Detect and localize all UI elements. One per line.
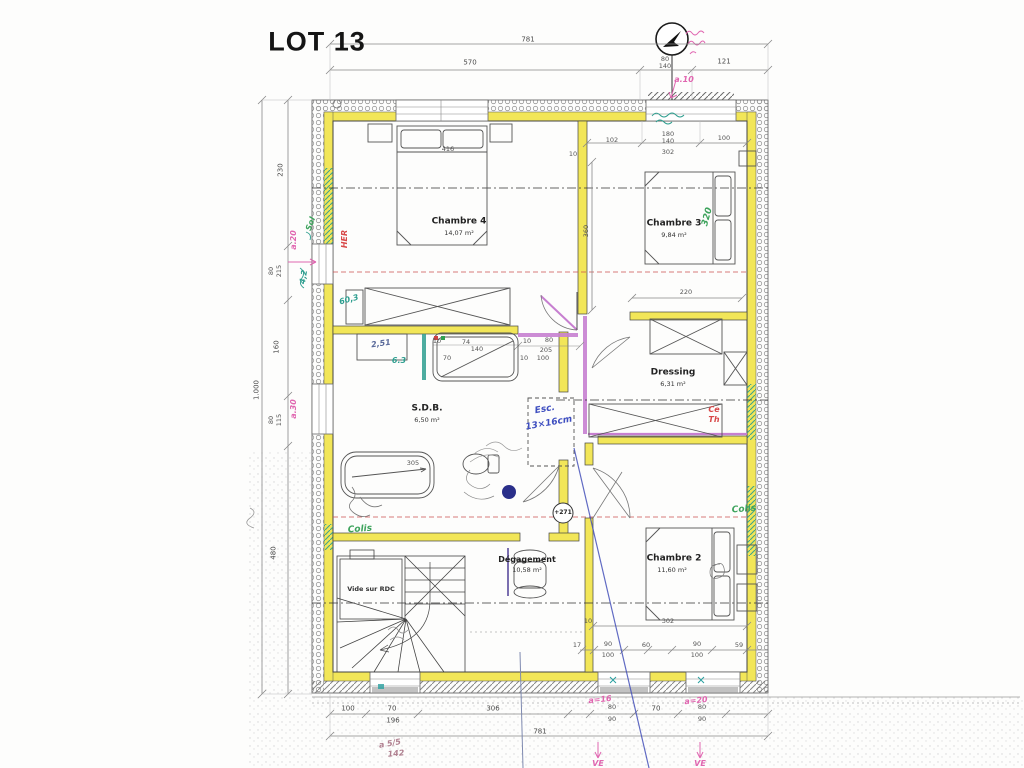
room-label-vide-sur-rdc: Vide sur RDC xyxy=(347,586,395,593)
dim-c2-59: 59 xyxy=(735,642,743,649)
staircase xyxy=(337,550,465,672)
room-area-chambre2: 11,60 m² xyxy=(657,567,687,574)
anno-pink-a20: a.20 xyxy=(290,230,298,250)
dim-win-302: 302 xyxy=(662,149,674,156)
dim-left-80b: 80 xyxy=(268,416,275,424)
dim-top-121: 121 xyxy=(717,59,730,66)
anno-pink-a30: a.30 xyxy=(290,399,298,419)
room-area-degagement: 10,58 m² xyxy=(512,567,542,574)
anno-c142: 142 xyxy=(387,749,404,758)
dim-van-74: 74 xyxy=(462,339,470,346)
dim-c2-90b: 90 xyxy=(693,641,701,648)
dim-bottom-overall: 781 xyxy=(533,729,546,736)
room-area-chambre4: 14,07 m² xyxy=(444,230,474,237)
floor-drain-dot xyxy=(502,485,516,499)
dim-win-140: 140 xyxy=(662,138,674,145)
dim-bottom-196: 196 xyxy=(386,718,399,725)
anno-red-her: HER xyxy=(341,230,349,248)
dim-c2-302: 302 xyxy=(662,618,674,625)
plan-title: LOT 13 xyxy=(268,29,366,56)
dim-c2-60: 60 xyxy=(642,642,650,649)
floor-plan-drawing xyxy=(0,0,1024,768)
dim-c2-10: 10 xyxy=(584,618,592,625)
dim-c2-17: 17 xyxy=(573,642,581,649)
exterior-walls xyxy=(312,100,768,693)
anno-pink-a10: a.10 xyxy=(674,76,694,84)
dim-bottom-70b: 70 xyxy=(652,706,661,713)
dim-c2-90a: 90 xyxy=(604,641,612,648)
room-area-sdb: 6,50 m² xyxy=(414,417,439,424)
room-area-chambre3: 9,84 m² xyxy=(661,232,686,239)
room-label-sdb: S.D.B. xyxy=(411,405,442,414)
dim-tub-305: 305 xyxy=(407,460,419,467)
dim-left-80a: 80 xyxy=(268,267,275,275)
dim-door-100: 100 xyxy=(537,355,549,362)
dim-bottom-70a: 70 xyxy=(388,706,397,713)
wardrobe-closets xyxy=(346,288,747,437)
dim-door-10a: 10 xyxy=(523,338,531,345)
room-label-degagement: Dégagement xyxy=(498,556,556,564)
dim-van-10: 10 xyxy=(433,338,441,345)
anno-pink-ve1: VE xyxy=(592,760,604,768)
dimension-lines xyxy=(258,40,772,740)
dim-wall-10: 10 xyxy=(569,151,577,158)
room-label-chambre2: Chambre 2 xyxy=(647,555,702,564)
anno-green-colis2: Colis xyxy=(348,525,373,536)
dim-door-80: 80 xyxy=(545,337,553,344)
dim-c2-100a: 100 xyxy=(602,652,614,659)
dim-door-205: 205 xyxy=(540,347,552,354)
terrain-stipple xyxy=(247,452,1024,768)
dim-left-160: 160 xyxy=(274,340,281,353)
room-area-dressing: 6,31 m² xyxy=(660,381,685,388)
dim-bed4-416: 416 xyxy=(442,146,454,153)
anno-teal-63: 6.3 xyxy=(392,357,406,365)
anno-pink-ve2: VE xyxy=(694,760,706,768)
dim-left-215: 215 xyxy=(276,265,283,277)
dim-bottom-90a: 90 xyxy=(608,716,616,723)
dim-door-10b: 10 xyxy=(520,355,528,362)
dim-top-main: 570 xyxy=(463,60,476,67)
dim-left-230: 230 xyxy=(278,163,285,176)
dim-bottom-306: 306 xyxy=(486,706,499,713)
level-marker-value: +271 xyxy=(554,510,572,516)
dim-c2-100b: 100 xyxy=(691,652,703,659)
anno-red-ce: Ce xyxy=(708,406,719,414)
dim-top-overall: 781 xyxy=(521,37,534,44)
dim-bottom-80b: 80 xyxy=(698,704,706,711)
dim-van-70: 70 xyxy=(443,355,451,362)
room-label-chambre4: Chambre 4 xyxy=(432,218,487,227)
dim-win-102: 102 xyxy=(606,137,618,144)
anno-red-th: Th xyxy=(708,416,719,424)
bed-chambre3 xyxy=(645,151,756,264)
dim-left-115: 115 xyxy=(276,414,283,426)
room-label-dressing: Dressing xyxy=(651,369,696,378)
dim-bottom-80a: 80 xyxy=(608,704,616,711)
dim-top-140: 140 xyxy=(659,63,671,70)
dim-360: 360 xyxy=(583,225,590,237)
floor-plan-page: LOT 13 Chambre 4 14,07 m² Chambre 3 9,84… xyxy=(0,0,1024,768)
dim-win-100: 100 xyxy=(718,135,730,142)
room-label-chambre3: Chambre 3 xyxy=(647,220,702,229)
dim-left-overall: 1.000 xyxy=(254,380,261,400)
dim-220: 220 xyxy=(680,289,692,296)
dim-left-480: 480 xyxy=(271,546,278,559)
dim-van-140: 140 xyxy=(471,346,483,353)
bed-chambre2 xyxy=(646,528,757,620)
dim-bottom-100: 100 xyxy=(341,706,354,713)
dim-bottom-90b: 90 xyxy=(698,716,706,723)
bed-chambre4 xyxy=(368,124,512,245)
